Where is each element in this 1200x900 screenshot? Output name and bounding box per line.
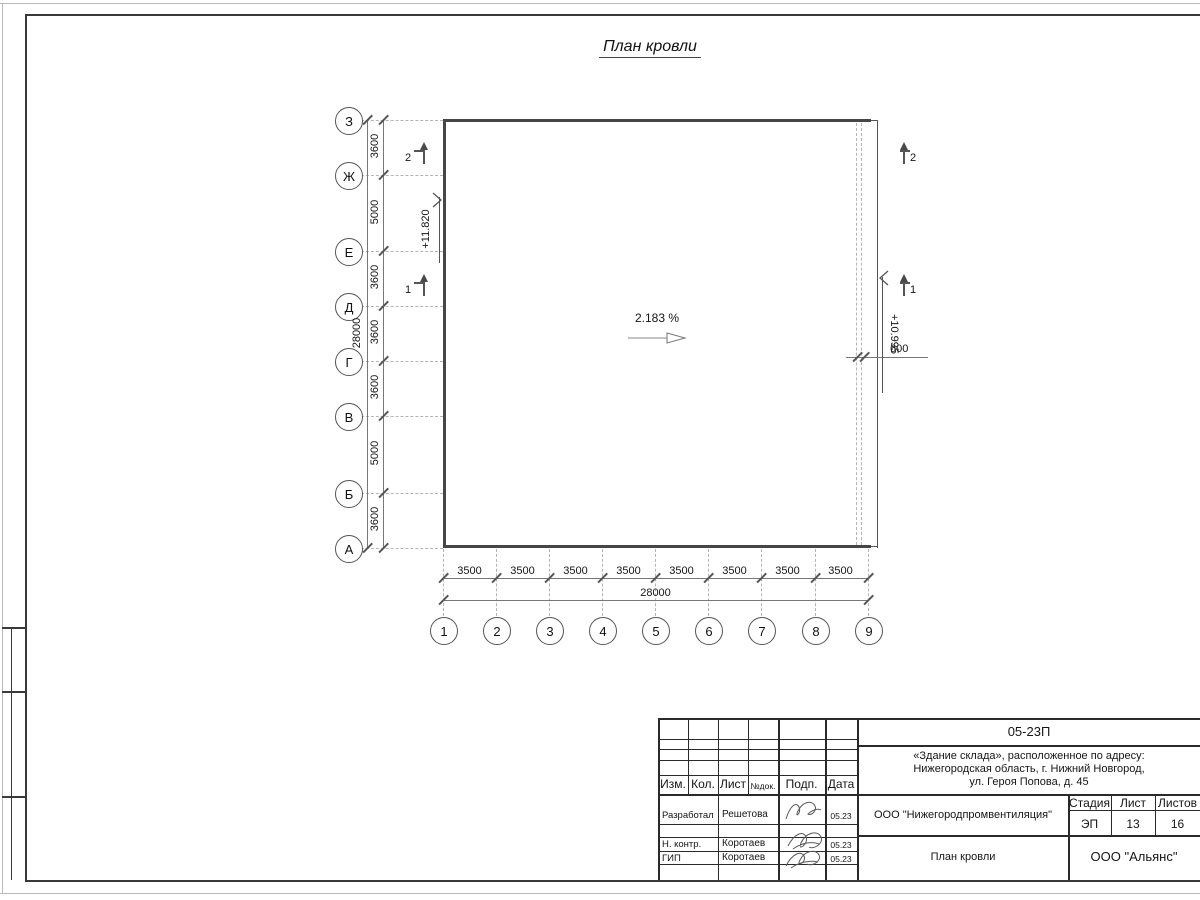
axis-line-2 (496, 549, 497, 616)
margin-strip-divider (11, 627, 12, 880)
elevation-label-right: +10.995 (888, 302, 900, 366)
titleblock-line (658, 775, 858, 776)
axis-bubble-a: А (335, 535, 363, 563)
tb-sheet-value: 13 (1111, 817, 1155, 831)
page-title: План кровли (450, 38, 850, 56)
axis-label: 6 (705, 624, 712, 639)
axis-bubble-7: 7 (748, 617, 776, 645)
dim-label-h: 3500 (602, 565, 655, 577)
tb-header-data: Дата (825, 777, 857, 791)
axis-bubble-e: Е (335, 238, 363, 266)
axis-line-3 (549, 549, 550, 616)
titleblock-line (778, 718, 780, 880)
axis-label: 5 (652, 624, 659, 639)
axis-line-1 (443, 549, 444, 616)
tb-role-gip: ГИП (662, 853, 681, 864)
axis-bubble-z: З (335, 107, 363, 135)
axis-label: 8 (812, 624, 819, 639)
section-mark-line (903, 150, 905, 164)
elevation-label-left: +11.820 (420, 197, 432, 261)
roof-edge-left (443, 119, 446, 548)
dim-label-h: 3500 (655, 565, 708, 577)
dim-label-v: 5000 (369, 423, 381, 483)
tb-project-line2: Нижегородская область, г. Нижний Новгоро… (858, 763, 1200, 775)
titleblock-line (658, 739, 858, 740)
tb-name-gip: Коротаев (722, 852, 765, 863)
section-arrow-icon (900, 274, 908, 282)
roof-edge-right (877, 120, 878, 548)
tb-role-ncontrol: Н. контр. (662, 839, 701, 850)
axis-bubble-1: 1 (430, 617, 458, 645)
paper-edge-left (2, 3, 3, 893)
hidden-wall-line-2 (861, 123, 862, 545)
section-mark-line (423, 150, 425, 164)
axis-bubble-6: 6 (695, 617, 723, 645)
axis-line-4 (602, 549, 603, 616)
axis-bubble-b: Б (335, 480, 363, 508)
signature-icon (786, 851, 820, 868)
dim-label-v-total: 28000 (351, 303, 363, 363)
signature-icon (786, 802, 821, 819)
tb-header-izm: Изм. (658, 777, 688, 791)
axis-label: 1 (440, 624, 447, 639)
dim-line-left-outer (367, 120, 368, 548)
axis-label: 4 (599, 624, 606, 639)
axis-label: 7 (758, 624, 765, 639)
section-number: 1 (405, 284, 411, 296)
axis-line-7 (761, 549, 762, 616)
section-mark-line (423, 282, 425, 296)
tb-sheets-value: 16 (1155, 817, 1200, 831)
dim-label-h: 3500 (549, 565, 602, 577)
dim-label-h: 3500 (814, 565, 867, 577)
tb-company: ООО "Нижегородпромвентиляция" (858, 809, 1068, 821)
titleblock-line (658, 749, 858, 750)
roof-edge-bottom (443, 545, 871, 548)
section-mark-line (903, 282, 905, 296)
dim-label-h-total: 28000 (443, 587, 868, 599)
titleblock-line (1068, 810, 1200, 811)
section-mark-cap (900, 282, 910, 284)
axis-bubble-v: В (335, 403, 363, 431)
axis-bubble-8: 8 (802, 617, 830, 645)
axis-line-6 (708, 549, 709, 616)
drawing-sheet: План кровли З Ж Е Д Г В Б А 3600 5000 36… (0, 0, 1200, 900)
slope-arrow-icon (628, 333, 685, 343)
dim-line-600 (846, 357, 928, 358)
axis-line-5 (655, 549, 656, 616)
titleblock-line (658, 864, 858, 865)
tb-role-developer: Разработал (662, 810, 714, 821)
tb-org: ООО "Альянс" (1068, 849, 1200, 864)
dim-label-v: 3600 (369, 357, 381, 417)
signature-icon (788, 833, 822, 849)
axis-label: А (345, 542, 354, 557)
dim-label-v: 3600 (369, 247, 381, 307)
roof-edge-top (443, 119, 871, 122)
paper-edge-bottom (0, 893, 1200, 894)
axis-label: 9 (865, 624, 872, 639)
tb-project-line1: «Здание склада», расположенное по адресу… (858, 750, 1200, 762)
axis-bubble-2: 2 (483, 617, 511, 645)
axis-label: Е (345, 245, 354, 260)
dim-label-v: 3600 (369, 302, 381, 362)
elevation-leader-left (439, 197, 440, 263)
dim-label-v: 5000 (369, 182, 381, 242)
titleblock-line (658, 760, 858, 761)
dim-label-h: 3500 (761, 565, 814, 577)
section-number: 2 (405, 152, 411, 164)
titleblock-line (858, 835, 1200, 837)
dim-label-v: 3600 (369, 489, 381, 549)
dim-line-bottom-outer (443, 600, 868, 601)
tb-sheets-label: Листов (1155, 796, 1200, 810)
axis-bubble-4: 4 (589, 617, 617, 645)
slope-label: 2.183 % (607, 311, 707, 325)
axis-label: Б (345, 487, 354, 502)
section-mark-cap (900, 150, 910, 152)
titleblock-line (658, 718, 660, 880)
dim-line-left-inner (383, 120, 384, 548)
tb-header-ndok: №док. (748, 781, 778, 791)
dim-label-h: 3500 (443, 565, 496, 577)
tb-stage-label: Стадия (1068, 796, 1111, 810)
dim-label-h: 3500 (496, 565, 549, 577)
roof-edge-right-top-connector (871, 120, 878, 121)
tb-header-podp: Подп. (778, 777, 825, 791)
titleblock-line (658, 824, 858, 825)
axis-bubble-zh: Ж (335, 162, 363, 190)
section-arrow-icon (420, 142, 428, 150)
frame-bottom (25, 880, 1200, 882)
tb-date-ncontrol: 05.23 (825, 840, 857, 850)
axis-label: Ж (343, 169, 355, 184)
tb-header-kol: Кол. (688, 777, 718, 791)
titleblock-line (858, 745, 1200, 747)
roof-edge-right-bottom-connector (871, 546, 878, 547)
dim-label-h: 3500 (708, 565, 761, 577)
axis-label: 3 (546, 624, 553, 639)
section-arrow-icon (420, 274, 428, 282)
axis-label: З (345, 114, 353, 129)
section-number: 2 (910, 152, 916, 164)
axis-label: В (345, 410, 354, 425)
frame-top (25, 14, 1200, 16)
margin-strip-line-1 (2, 627, 25, 629)
tb-name-developer: Решетова (722, 809, 768, 820)
margin-strip-line-2 (2, 691, 25, 693)
tb-project-line3: ул. Героя Попова, д. 45 (858, 776, 1200, 788)
tb-document-code: 05-23П (858, 724, 1200, 739)
axis-bubble-5: 5 (642, 617, 670, 645)
axis-line-8 (815, 549, 816, 616)
axis-bubble-3: 3 (536, 617, 564, 645)
margin-strip-line-3 (2, 796, 25, 798)
paper-edge-top (0, 3, 1200, 4)
tb-name-ncontrol: Коротаев (722, 838, 765, 849)
hidden-wall-line-1 (856, 123, 857, 545)
titleblock-line (658, 718, 1200, 720)
dim-label-v: 3600 (369, 116, 381, 176)
section-number: 1 (910, 284, 916, 296)
tb-stage-value: ЭП (1068, 817, 1111, 831)
axis-line-9 (868, 549, 869, 616)
elevation-leader-right (882, 277, 883, 393)
axis-label: 2 (493, 624, 500, 639)
tb-date-developer: 05.23 (825, 811, 857, 821)
titleblock-line (718, 718, 719, 880)
section-arrow-icon (900, 142, 908, 150)
tb-header-list: Лист (718, 777, 748, 791)
tb-sheet-label: Лист (1111, 796, 1155, 810)
tb-drawing-name: План кровли (858, 851, 1068, 863)
axis-bubble-9: 9 (855, 617, 883, 645)
tb-date-gip: 05.23 (825, 854, 857, 864)
frame-left (25, 14, 27, 880)
